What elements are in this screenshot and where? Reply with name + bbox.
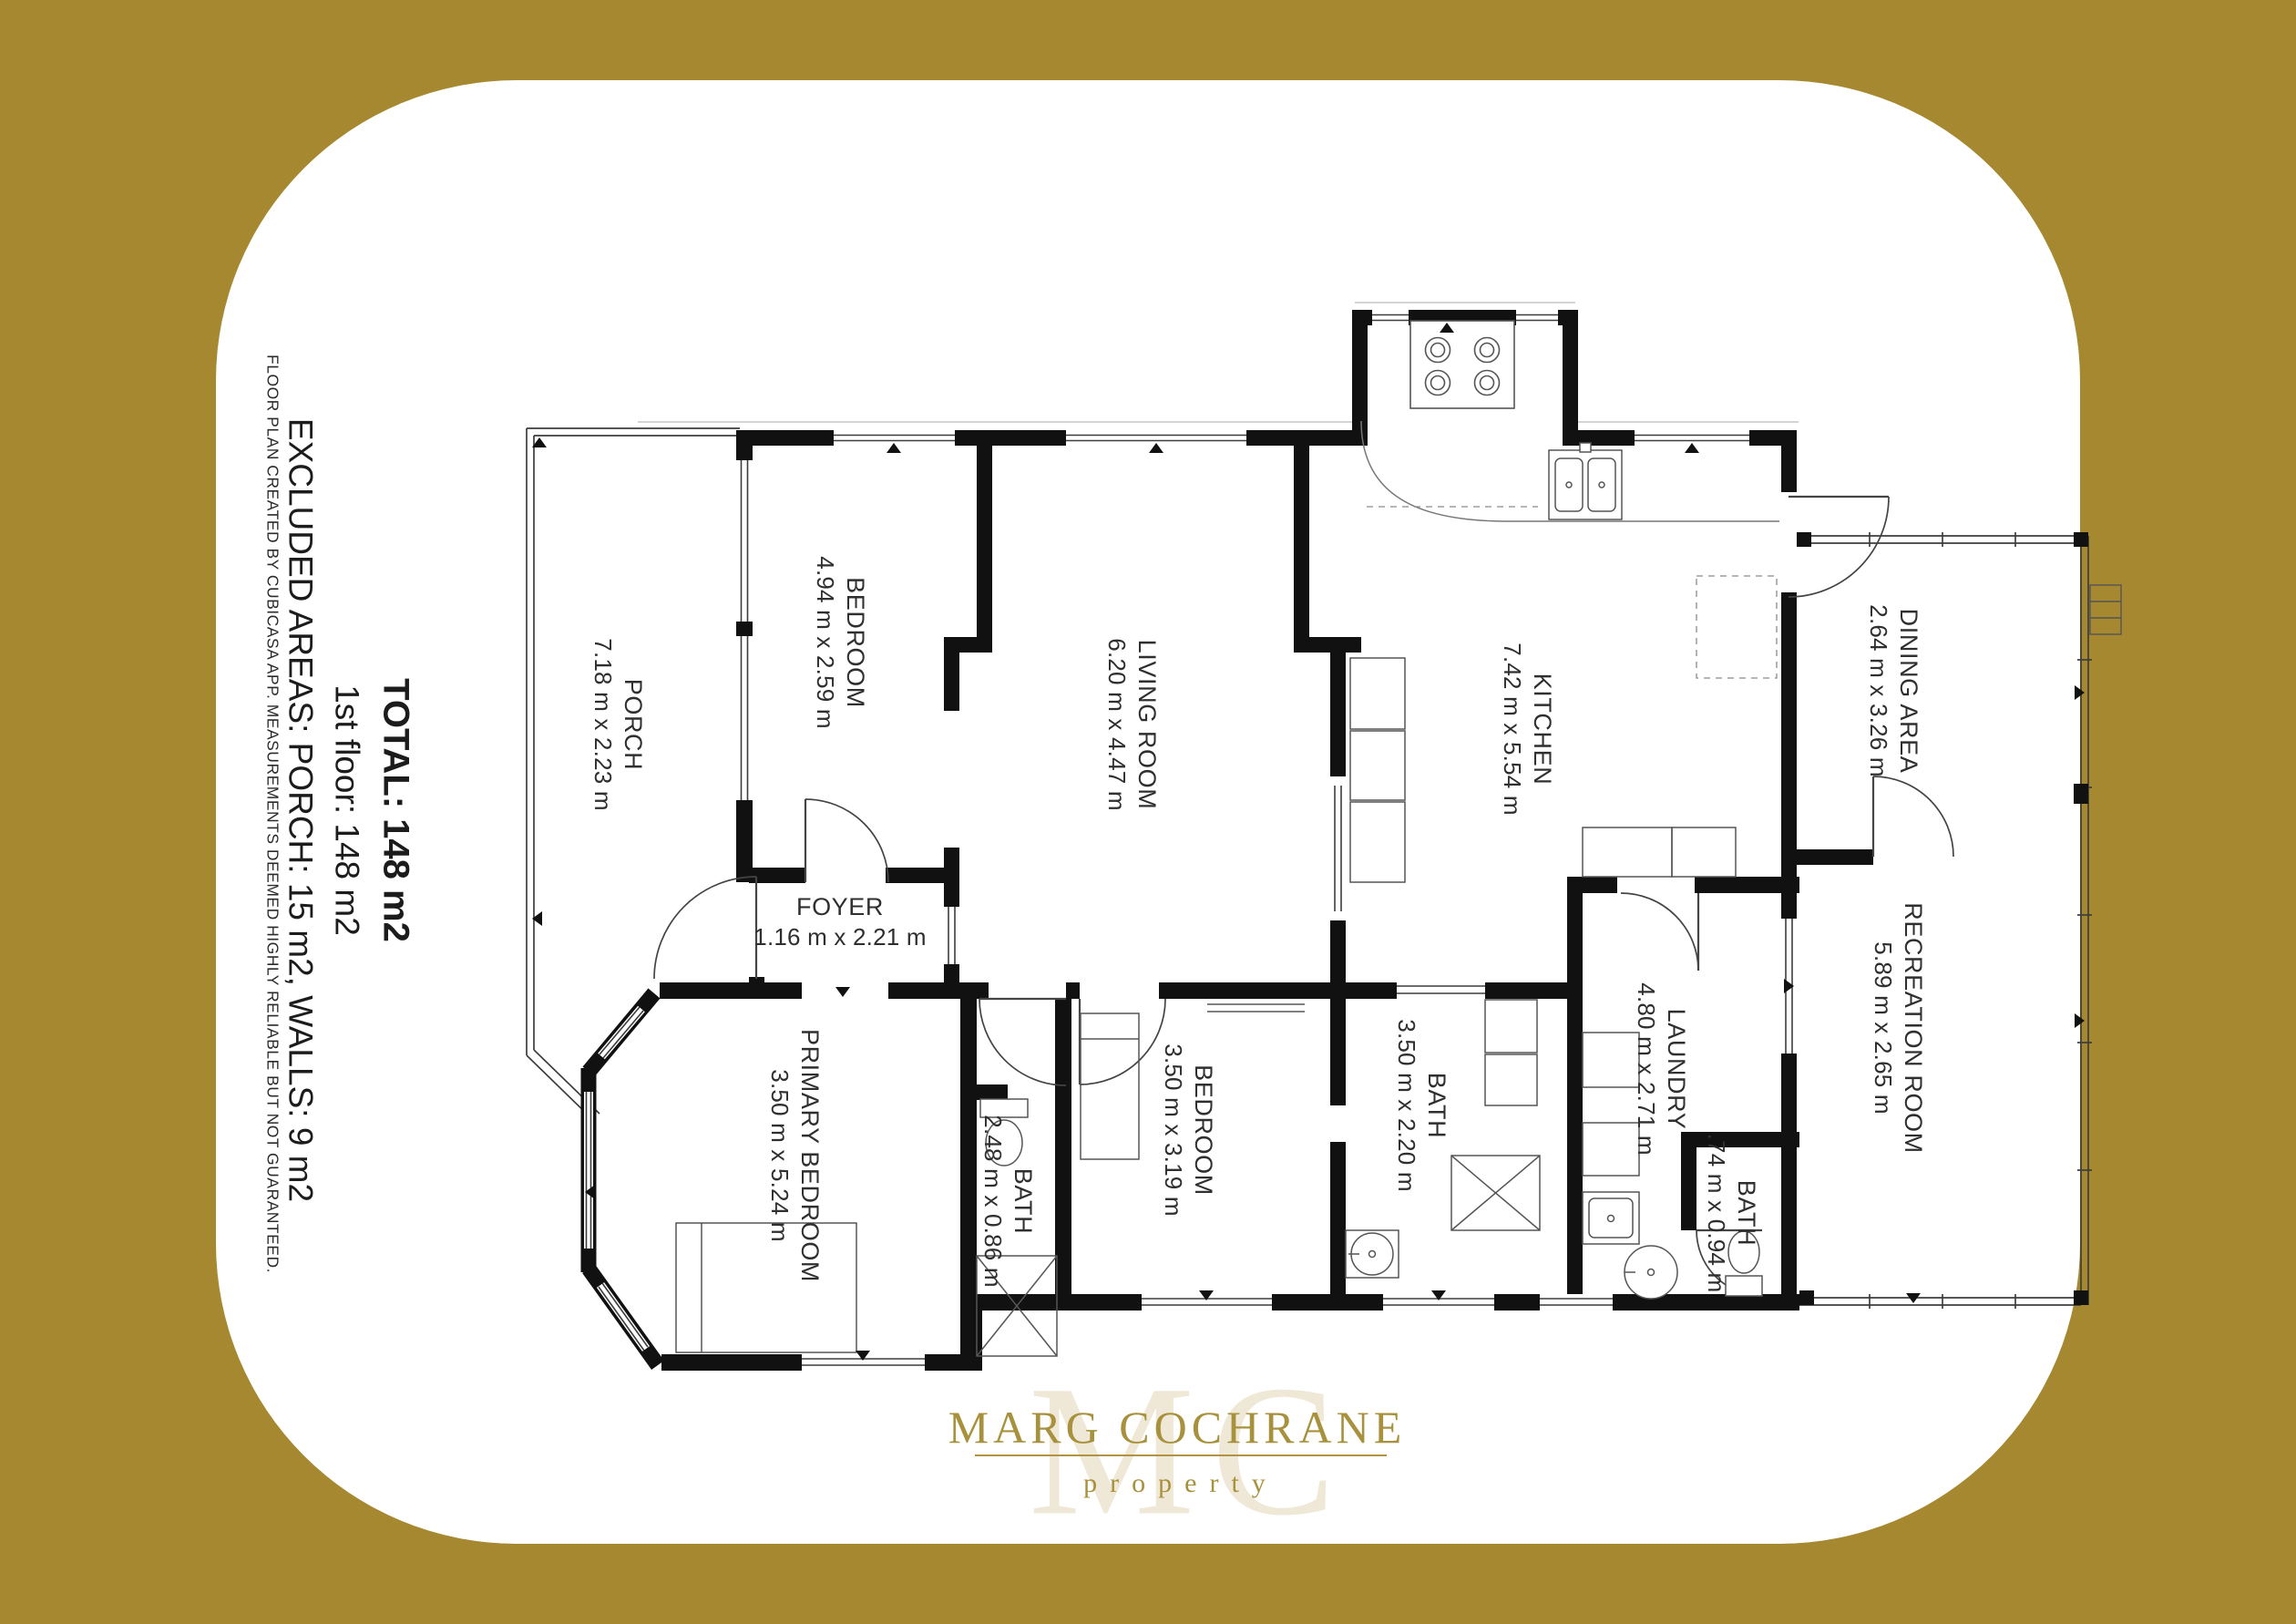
room-dims: 7.42 m x 5.54 m bbox=[1497, 642, 1526, 815]
room-dims: 2.48 m x 0.86 m bbox=[978, 1115, 1007, 1287]
room-dims: .74 m x 0.94 m bbox=[1701, 1134, 1730, 1293]
room-dims: 3.50 m x 5.24 m bbox=[764, 1029, 794, 1282]
room-label-foyer: FOYER 1.16 m x 2.21 m bbox=[753, 892, 926, 952]
room-name: BATH bbox=[1420, 1019, 1450, 1191]
room-dims: 2.64 m x 3.26 m bbox=[1863, 604, 1892, 776]
room-label-dining: DINING AREA 2.64 m x 3.26 m bbox=[1863, 604, 1923, 776]
room-label-bedroom2: BEDROOM 3.50 m x 3.19 m bbox=[1158, 1043, 1218, 1216]
room-label-bedroom1: BEDROOM 4.94 m x 2.59 m bbox=[810, 556, 870, 728]
room-label-kitchen: KITCHEN 7.42 m x 5.54 m bbox=[1497, 642, 1557, 815]
room-label-bath-main: BATH 3.50 m x 2.20 m bbox=[1391, 1019, 1451, 1191]
logo-divider bbox=[975, 1454, 1387, 1456]
room-name: PORCH bbox=[617, 638, 647, 810]
sunroom-piers bbox=[1797, 532, 2088, 1305]
room-label-living: LIVING ROOM 6.20 m x 4.47 m bbox=[1102, 638, 1162, 810]
room-dims: 4.94 m x 2.59 m bbox=[810, 556, 839, 728]
bay-window-walls bbox=[587, 993, 659, 1365]
shower-icon-main-bath bbox=[1451, 1156, 1540, 1230]
sunroom-walls bbox=[1797, 532, 2092, 1309]
room-dims: 1.16 m x 2.21 m bbox=[753, 923, 926, 952]
room-dims: 3.50 m x 2.20 m bbox=[1391, 1019, 1420, 1191]
room-name: BEDROOM bbox=[1187, 1043, 1217, 1216]
logo-brand-name: MARG COCHRANE bbox=[948, 1401, 1407, 1454]
excluded-areas: EXCLUDED AREAS: PORCH: 15 m2, WALLS: 9 m… bbox=[277, 418, 323, 1202]
room-dims: 3.50 m x 3.19 m bbox=[1158, 1043, 1187, 1216]
floor-area: 1st floor: 148 m2 bbox=[323, 418, 370, 1202]
page-background: PORCH 7.18 m x 2.23 m BEDROOM 4.94 m x 2… bbox=[0, 0, 2296, 1624]
room-dims: 4.80 m x 2.71 m bbox=[1631, 982, 1660, 1155]
total-area: TOTAL: 148 m2 bbox=[370, 418, 420, 1202]
room-label-bath-hall: BATH 2.48 m x 0.86 m bbox=[978, 1115, 1038, 1287]
room-name: DINING AREA bbox=[1892, 604, 1922, 776]
room-label-recreation: RECREATION ROOM 5.89 m x 2.65 m bbox=[1868, 902, 1928, 1154]
room-name: BATH bbox=[1007, 1115, 1037, 1287]
room-label-bath-laundry: BATH .74 m x 0.94 m bbox=[1701, 1134, 1761, 1293]
room-label-primary: PRIMARY BEDROOM 3.50 m x 5.24 m bbox=[764, 1029, 825, 1282]
eave-lines bbox=[638, 303, 1799, 422]
room-dims: 6.20 m x 4.47 m bbox=[1102, 638, 1131, 810]
walls bbox=[660, 310, 1873, 1371]
room-dims: 5.89 m x 2.65 m bbox=[1868, 902, 1897, 1154]
room-name: KITCHEN bbox=[1526, 642, 1556, 815]
outdoor-steps bbox=[2090, 585, 2121, 634]
disclaimer-text: FLOOR PLAN CREATED BY CUBICASA APP. MEAS… bbox=[263, 355, 282, 1273]
room-dims: 7.18 m x 2.23 m bbox=[588, 638, 617, 810]
room-label-laundry: LAUNDRY 4.80 m x 2.71 m bbox=[1631, 982, 1691, 1155]
area-summary: TOTAL: 148 m2 1st floor: 148 m2 EXCLUDED… bbox=[277, 418, 420, 1202]
room-name: BEDROOM bbox=[839, 556, 869, 728]
kitchen-sink-icon bbox=[1549, 443, 1622, 519]
room-name: RECREATION ROOM bbox=[1897, 902, 1927, 1154]
room-label-porch: PORCH 7.18 m x 2.23 m bbox=[588, 638, 648, 810]
logo-tagline: property bbox=[1083, 1468, 1278, 1499]
room-name: LIVING ROOM bbox=[1131, 638, 1161, 810]
room-name: LAUNDRY bbox=[1660, 982, 1690, 1155]
room-name: PRIMARY BEDROOM bbox=[794, 1029, 824, 1282]
room-name: BATH bbox=[1730, 1134, 1760, 1293]
room-name: FOYER bbox=[753, 892, 926, 922]
stove-icon bbox=[1410, 321, 1514, 408]
